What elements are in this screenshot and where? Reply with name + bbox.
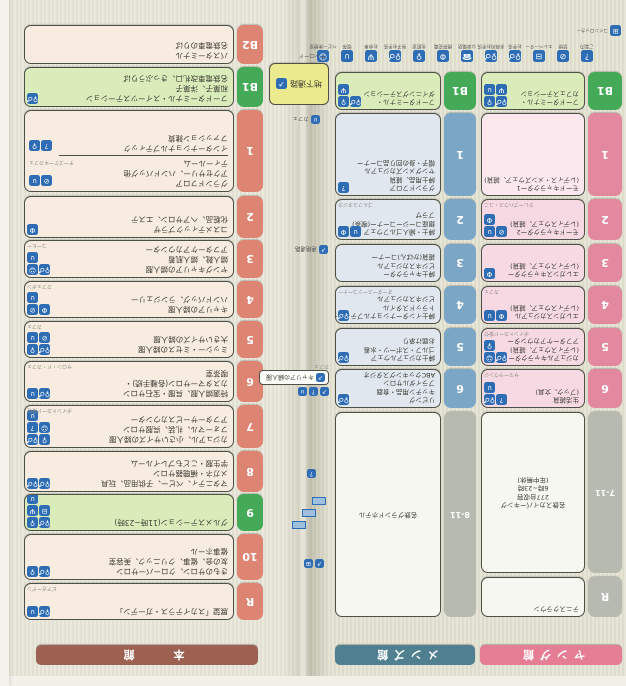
floor-row-mens-3: 3紳士キャラクタービジネスカジュアル雑貨(かばん)コーナー (335, 244, 476, 282)
floor-box: カジュアル、小さいサイズの婦人服フォーマル、礼装、呉服サロンアフターサービスカウ… (24, 405, 234, 448)
info-icon: ? (581, 50, 593, 62)
legend-item: ♀♂多目的お手洗 (480, 43, 502, 62)
service-icon: Φ (496, 310, 507, 321)
floor-line: グルメステーション(11時~23時) (59, 517, 228, 527)
floor-line: 化粧品、ヘアサロン、エステ (59, 215, 228, 225)
female-icon: ♀ (27, 566, 38, 577)
floor-line: フードターミナル・スイーツステーション (59, 93, 228, 103)
floor-line: モードキャラクター2 (516, 228, 579, 236)
floor-box: カジュアルキャラクター(レディスウェア、雑貨)アフターケアカウンター♀♂☺♀ポイ… (481, 328, 585, 366)
floor-row-young-4: 4エレガンスカジュアル(レディスウェア、雑貨)Φ∪カフェ (481, 286, 622, 324)
floor-box: テニスクラウン (481, 577, 585, 617)
floor-box: グランドフロア紳士用品、雑貨ヤングメンズカジュアル帽子・身の回り品コーナー? (335, 113, 441, 196)
floor-line: 紳士用品、雑貨 (370, 175, 435, 183)
floor-line: 雑貨(かばん)コーナー (370, 253, 435, 261)
phone-icon: ☎ (461, 50, 473, 62)
elevator-icon: ⊟ (533, 50, 545, 62)
underpass-label: 地下通路 (290, 79, 322, 90)
floor-row-honkan-5: 5ミッシー・ミセスの婦人服大きいサイズの婦人服♀♂♀⊘∪カフェ (24, 321, 263, 358)
floor-box: リビングキッチン用品・食器ブライダルサロンABCクッキングスタジオ♀♂ (335, 369, 441, 408)
floor-line: テニスクラウン (516, 605, 579, 613)
floor-line: (レディスウェア、雑貨) (516, 261, 579, 269)
icon-note: チーズケーキカフェ (29, 159, 74, 166)
floor-box: エレガンスカジュアル(レディスウェア、雑貨)Φ∪カフェ (481, 286, 585, 324)
floor-line: 紳士カジュアルウェア (370, 354, 435, 362)
floor-line: 紳士キャラクター (370, 270, 435, 278)
cafe-icon: ∪ (29, 175, 40, 186)
floor-line: モードキャラクター1 (516, 184, 579, 192)
restroom-icon: ♀♂ (485, 50, 497, 62)
restroom-icon: ♀♂ (27, 434, 38, 445)
floor-tab: 1 (588, 113, 622, 196)
floor-row-honkan-2: 2コスメティックプラザ化粧品、ヘアサロン、エステΦ (24, 196, 263, 238)
cafe-icon: ∪ (27, 494, 38, 504)
banner-mens: メンズ館 (335, 645, 475, 665)
icon-note: カフェ (484, 288, 499, 295)
floor-line: カスタマーサロン(各種手続)・ (59, 379, 228, 389)
floor-box: モードキャラクター1(レディス・メンズウェア、雑貨) (481, 113, 585, 196)
restroom-icon: ♀♂ (39, 606, 50, 617)
nosmoke-icon: ⊘ (39, 332, 50, 343)
service-icon: Φ (484, 268, 495, 279)
floor-tab: 5 (444, 328, 476, 366)
cafe-icon: ∪ (484, 84, 495, 95)
baby-icon: ☺ (39, 422, 50, 433)
floor-row-honkan-B1: B1フードターミナル・スイーツステーション和菓子、洋菓子名鉄電車改札口、きっぷう… (24, 67, 263, 107)
floor-guide-pamphlet-scan: ヤング館 メンズ館 本 館 Rテニスクラウン7-11名鉄スカイパーキング277台… (0, 0, 626, 686)
info-icon: ? (41, 140, 52, 151)
floor-row-mens-6: 6リビングキッチン用品・食器ブライダルサロンABCクッキングスタジオ♀♂ (335, 369, 476, 408)
cafe-icon: ∪ (298, 387, 307, 396)
cafe-icon: ∪ (341, 50, 353, 62)
legend-label: お食事 (364, 43, 378, 49)
amenity-legend: ?ご案内⊘禁煙⊟エレベーター♀♂お手洗♀♂多目的お手洗☎公衆電話Φ携帯充電♀化粧… (330, 43, 598, 62)
floor-line: メガネ・補聴器サロン (59, 469, 228, 479)
escalator-icon: ↗ (316, 373, 325, 382)
cafe-icon: ∪ (484, 310, 495, 321)
service-icon: Φ (437, 50, 449, 62)
floor-line: キャリアの婦人服 (59, 304, 228, 314)
floor-line: ダイニングステーション (370, 89, 435, 97)
floor-line: (ブック、文具) (516, 387, 579, 395)
floor-row-mens-1: 1グランドフロア紳士用品、雑貨ヤングメンズカジュアル帽子・身の回り品コーナー? (335, 113, 476, 196)
floor-tab: 1 (444, 113, 476, 196)
floor-line: グランドフロア (370, 184, 435, 192)
info-icon: ? (27, 422, 38, 433)
female-icon: ♀ (29, 140, 40, 151)
floor-line: お届け承り (370, 337, 435, 345)
floor-tab: 3 (444, 244, 476, 282)
service-icon: Φ (484, 214, 495, 225)
baby-icon: ☺ (484, 352, 495, 363)
cafe-icon: ∪ (484, 382, 495, 393)
floor-row-honkan-7: 7カジュアル、小さいサイズの婦人服フォーマル、礼装、呉服サロンアフターサービスカ… (24, 405, 263, 448)
floor-box: 紳士カジュアルウェアゴルフ・スポーツ・水着お届け承り♀♂ (335, 328, 441, 366)
floor-tab: 10 (237, 534, 263, 580)
info-icon: ? (309, 387, 318, 396)
legend-item: ♀化粧室 (408, 43, 430, 62)
legend-item: Φ携帯充電 (432, 43, 454, 62)
restroom-icon: ♀♂ (338, 394, 349, 405)
callout-text: キャリアの婦人服 (266, 373, 314, 382)
info-icon: ? (307, 469, 316, 478)
floor-box: 特選婦人服、呉服・宝石サロンカスタマーサロン(各種手続)・喫茶室♀♂∪サロン・ド… (24, 361, 234, 402)
legend-item: ☎公衆電話 (456, 43, 478, 62)
female-icon: ♀ (39, 434, 50, 445)
floor-line: 名鉄スカイパーキング (501, 501, 566, 509)
floor-box: ミッシー・ミセスの婦人服大きいサイズの婦人服♀♂♀⊘∪カフェ (24, 321, 234, 358)
underpass-box: 地下通路 ↗ (269, 63, 329, 105)
escalator-icon: ↗ (320, 387, 329, 396)
floor-line: 名鉄電車のりば (59, 41, 228, 51)
floor-line: マタニティ、ベビー、子供用品、玩具 (59, 478, 228, 488)
icon-note: ゴルフスタジオ (338, 201, 373, 208)
floor-tab: 7-11 (588, 412, 622, 573)
legend-item: ⊟エレベーター (528, 43, 550, 62)
cafe-icon: ∪ (27, 606, 38, 617)
legend-corner-item: ⊞ コインロッカー (577, 25, 622, 36)
cafe-icon: ∪ (350, 226, 361, 237)
female-icon: ♀ (484, 96, 495, 107)
floor-row-young-3: 3エレガンスキャラクター(レディスウェア、雑貨)Φ (481, 244, 622, 282)
floor-row-honkan-9: 9グルメステーション(11時~23時)♀♂♀⊟Ψ∪ (24, 494, 263, 531)
service-icon: Φ (39, 304, 50, 315)
screen-icon: ⊞ (304, 559, 313, 568)
banner-young: ヤング館 (480, 645, 622, 665)
floor-line: 和菓子、洋菓子 (59, 84, 228, 94)
callout-note: カフェ (259, 363, 329, 370)
legend-item: ⊘禁煙 (552, 43, 574, 62)
service-icon: Φ (338, 226, 349, 237)
cafe-icon: ∪ (27, 252, 38, 263)
floor-box: グルメステーション(11時~23時)♀♂♀⊟Ψ∪ (24, 494, 234, 531)
floor-line: 友の会、催事、クリニック、美容室 (59, 557, 228, 567)
floor-row-honkan-1: 1グランドフロアアクセサリー、ハンドバッグ他ティールーム⊘∪チーズケーキカフェイ… (24, 110, 263, 192)
floor-line: エレガンスカジュアル (516, 312, 579, 320)
floor-box: 紳士インターナショナルブティック・トラッドスタイルビジネスカジュアル♀♂オーダー… (335, 286, 441, 324)
floor-line: ABCクッキングスタジオ (370, 370, 435, 378)
floor-line: 特選婦人服、呉服・宝石サロン (59, 388, 228, 398)
floor-line: フードターミナル・ (516, 98, 579, 106)
floor-box: ヤングキャリアの婦人服婦人靴、婦人肌着アフターケアカウンター♀♂☺∪コーヒー (24, 240, 234, 278)
legend-item: ♀♂男子お手洗 (384, 43, 406, 62)
floor-line: 紳士インターナショナルブティック・ (370, 312, 435, 320)
floor-tab: 2 (588, 199, 622, 240)
floor-line: アフターサービスカウンター (59, 415, 228, 425)
info-icon: ? (496, 394, 507, 405)
floor-tab: B1 (237, 67, 263, 107)
floor-line: ビジネスカジュアル (370, 295, 435, 303)
nosmoke-icon: ⊘ (41, 175, 52, 186)
floor-box: 紳士・婦人ゴルフウェア銀座コージーコーナー(喫茶)プラザ∪Φゴルフスタジオ (335, 199, 441, 240)
restroom-icon: ♀♂ (39, 478, 50, 489)
banner-honkan: 本 館 (36, 645, 258, 665)
floor-line: 婦人靴、婦人肌着 (59, 255, 228, 265)
floor-line: 名鉄電車改札口、きっぷうりば (59, 74, 228, 84)
floor-line: ヤングメンズカジュアル (370, 167, 435, 175)
icon-note: クレープハウス・ユニ (484, 201, 534, 208)
floor-line: (年中無休) (517, 476, 548, 484)
restroom-icon: ♀♂ (27, 478, 38, 489)
icon-note: カフェボン (27, 283, 52, 290)
icon-note: ポイントカード受付 (484, 330, 529, 337)
floor-line: 名鉄グランドホテル (359, 510, 418, 518)
floor-row-honkan-3: 3ヤングキャリアの婦人服婦人靴、婦人肌着アフターケアカウンター♀♂☺∪コーヒー (24, 240, 263, 278)
escalator-icon: ↗ (319, 245, 328, 254)
floor-row-honkan-10: 10きものサロン、クローバーサロン友の会、催事、クリニック、美容室催事ホール♀♂… (24, 534, 263, 580)
floor-line: インターナショナルブティック (59, 143, 228, 153)
restroom-icon: ♀♂ (496, 96, 507, 107)
floor-box: フードターミナル・ダイニングステーション♀♂♀Ψ (335, 72, 441, 110)
restroom-icon: ♀♂ (39, 566, 50, 577)
floor-tab: 5 (237, 321, 263, 358)
female-icon: ♀ (27, 517, 38, 528)
floor-line: カジュアル、小さいサイズの婦人服 (59, 434, 228, 444)
floor-line: ゴルフ・スポーツ・水着 (370, 345, 435, 353)
floor-line: (レディスウェア、雑貨) (516, 303, 579, 311)
section-divider (59, 155, 228, 156)
restaurant-icon: Ψ (496, 84, 507, 95)
restroom-icon: ♀♂ (389, 50, 401, 62)
floor-line: 紳士・婦人ゴルフウェア (370, 228, 435, 236)
restroom-icon: ♀♂ (39, 344, 50, 355)
cafe-icon: ∪ (484, 226, 495, 237)
restroom-icon: ♀♂ (509, 50, 521, 62)
floor-tab: 4 (588, 286, 622, 324)
baby-icon: ☺ (27, 264, 38, 275)
cafe-icon: ∪ (27, 332, 38, 343)
legend-label: お手洗 (508, 43, 522, 49)
restroom-icon: ♀♂ (338, 310, 349, 321)
floor-section: グランドフロアアクセサリー、ハンドバッグ他ティールーム⊘∪チーズケーキカフェ (59, 158, 228, 188)
floor-line: リビング (370, 396, 435, 404)
floor-row-honkan-8: 8マタニティ、ベビー、子供用品、玩具メガネ・補聴器サロン学生服・こどもプレイルー… (24, 451, 263, 492)
escalator-icon: ↗ (315, 559, 324, 568)
floor-row-young-1: 1モードキャラクター1(レディス・メンズウェア、雑貨) (481, 113, 622, 196)
floor-line: 展望「スカイテラス・ガーデン」 (59, 606, 228, 616)
floor-row-young-B1: B1フードターミナル・カフェステーション♀♂♀Ψ∪ (481, 72, 622, 110)
icon-note: オーダースーツコーナー (338, 288, 393, 295)
bridge-label: 連絡通路 (295, 246, 317, 254)
escalator-steps-marker (286, 491, 326, 531)
restaurant-icon: Ψ (365, 50, 377, 62)
floor-line: 6時~23時 (518, 484, 549, 492)
legend-item: ∪喫茶 (336, 43, 358, 62)
floor-box: エレガンスキャラクター(レディスウェア、雑貨)Φ (481, 244, 585, 282)
floor-row-honkan-6: 6特選婦人服、呉服・宝石サロンカスタマーサロン(各種手続)・喫茶室♀♂∪サロン・… (24, 361, 263, 402)
floor-line: きものサロン、クローバーサロン (59, 566, 228, 576)
floor-line: ヤングキャリアの婦人服 (59, 264, 228, 274)
floor-tab: 2 (237, 196, 263, 238)
floor-line: アフターケアカウンター (516, 337, 579, 345)
floor-line: グランドフロア (59, 178, 228, 188)
floor-tab: 2 (444, 199, 476, 240)
floor-line: 喫茶室 (59, 369, 228, 379)
restroom-icon: ♀♂ (39, 517, 50, 528)
floor-line: エレガンスキャラクター (516, 270, 579, 278)
fold-cafe-marker: ∪ カフェ (292, 115, 320, 124)
legend-label: 携帯充電 (434, 43, 452, 49)
female-icon: ♀ (27, 344, 38, 355)
floor-line: 催事ホール (59, 547, 228, 557)
floor-line: (レディスウェア、雑貨) (516, 345, 579, 353)
floor-box: フードターミナル・カフェステーション♀♂♀Ψ∪ (481, 72, 585, 110)
floor-box: 名鉄スカイパーキング277台収容6時~23時(年中無休) (481, 412, 585, 573)
escalator-icon: ↗ (276, 79, 287, 90)
fold-cafe-note: カフェ (292, 116, 309, 124)
restroom-icon: ♀♂ (27, 93, 38, 104)
nosmoke-icon: ⊘ (496, 226, 507, 237)
fold-info-marker: ? (307, 469, 316, 478)
floor-row-mens-4: 4紳士インターナショナルブティック・トラッドスタイルビジネスカジュアル♀♂オーダ… (335, 286, 476, 324)
female-icon: ♀ (338, 96, 349, 107)
floor-row-honkan-R: R展望「スカイテラス・ガーデン」♀♂∪ビアガーデン (24, 583, 263, 620)
floor-line: フォーマル、礼装、呉服サロン (59, 425, 228, 435)
elevator-icon: ⊟ (39, 505, 50, 516)
floor-box: 展望「スカイテラス・ガーデン」♀♂∪ビアガーデン (24, 583, 234, 620)
floor-line: 学生服・こどもプレイルーム (59, 459, 228, 469)
legend-label: エレベーター (526, 43, 553, 49)
legend-label: 男子お手洗 (384, 43, 407, 49)
floor-section: インターナショナルブティックファッション雑貨?♀ (59, 123, 228, 153)
floor-tab: 6 (444, 369, 476, 408)
icon-note: サロン・ド・カフェ (27, 363, 72, 370)
pamphlet-rotated-180: ヤング館 メンズ館 本 館 Rテニスクラウン7-11名鉄スカイパーキング277台… (0, 0, 626, 686)
nosmoke-icon: ⊘ (557, 50, 569, 62)
floor-line: コスメティックプラザ (59, 224, 228, 234)
floor-line: 277台収容 (517, 493, 549, 501)
legend-label: 禁煙 (559, 43, 568, 49)
floor-row-young-2: 2モードキャラクター2(レディスウェア、雑貨)⊘∪Φクレープハウス・ユニ (481, 199, 622, 240)
floor-line: ミッシー・ミセスの婦人服 (59, 344, 228, 354)
floor-line: 大きいサイズの婦人服 (59, 335, 228, 345)
floor-tab: 3 (588, 244, 622, 282)
floor-tab: 4 (444, 286, 476, 324)
underpass-note: サンロード (298, 52, 326, 60)
icon-note: サマーラウンジ (484, 371, 519, 378)
floor-line: 銀座コージーコーナー(喫茶) (370, 219, 435, 227)
floor-line: カジュアルキャラクター (516, 354, 579, 362)
floor-row-mens-2: 2紳士・婦人ゴルフウェア銀座コージーコーナー(喫茶)プラザ∪Φゴルフスタジオ (335, 199, 476, 240)
escalator-screen-marker: ↗ ⊞ (304, 559, 324, 568)
legend-label: 喫茶 (343, 43, 352, 49)
female-icon: ♀ (484, 340, 495, 351)
scan-margin-right (0, 0, 9, 686)
restroom-icon: ♀♂ (350, 96, 361, 107)
cafe-icon: ∪ (27, 388, 38, 399)
legend-item: Ψお食事 (360, 43, 382, 62)
restroom-icon: ♀♂ (39, 264, 50, 275)
legend-label: 公衆電話 (458, 43, 476, 49)
floor-tab: B1 (588, 72, 622, 110)
floor-tab: 7 (237, 405, 263, 448)
floor-line: ブライダルサロン (370, 379, 435, 387)
floor-line: バスターミナル (59, 50, 228, 60)
floor-tab: 4 (237, 281, 263, 318)
icon-note: ポイントカード受付 (27, 407, 72, 414)
service-icon: Φ (27, 224, 38, 235)
floor-line: キッチン用品・食器 (370, 387, 435, 395)
floor-line: 生活雑貨 (516, 396, 579, 404)
floor-tab: 9 (237, 494, 263, 531)
floor-line: ティールーム (59, 159, 228, 169)
floor-tab: B2 (237, 25, 263, 64)
restaurant-icon: Ψ (27, 505, 38, 516)
floor-line: アクセサリー、ハンドバッグ他 (59, 169, 228, 179)
floor-box: フードターミナル・スイーツステーション和菓子、洋菓子名鉄電車改札口、きっぷうりば… (24, 67, 234, 107)
floor-tab: 3 (237, 240, 263, 278)
floor-line: アフターケアカウンター (59, 245, 228, 255)
icon-note: カフェ (27, 323, 42, 330)
floor-row-young-6: 6生活雑貨(ブック、文具)?♀♂∪サマーラウンジ (481, 369, 622, 408)
floor-box: コスメティックプラザ化粧品、ヘアサロン、エステΦ (24, 196, 234, 238)
floor-row-mens-8-11: 8-11名鉄グランドホテル (335, 412, 476, 617)
cafe-icon: ∪ (311, 115, 320, 124)
floor-row-young-7-11: 7-11名鉄スカイパーキング277台収容6時~23時(年中無休) (481, 412, 622, 573)
floor-line: ファッション雑貨 (59, 134, 228, 144)
floor-row-mens-B1: B1フードターミナル・ダイニングステーション♀♂♀Ψ (335, 72, 476, 110)
restroom-icon: ♀♂ (39, 388, 50, 399)
legend-item: ?ご案内 (576, 43, 598, 62)
bridge-callout: ↗?∪ ↗ キャリアの婦人服 カフェ (259, 363, 329, 396)
floor-row-young-R: Rテニスクラウン (481, 577, 622, 617)
floor-row-mens-5: 5紳士カジュアルウェアゴルフ・スポーツ・水着お届け承り♀♂ (335, 328, 476, 366)
restaurant-icon: Ψ (338, 84, 349, 95)
nosmoke-icon: ⊘ (27, 304, 38, 315)
cafe-icon: ∪ (27, 292, 38, 303)
floor-box: バスターミナル名鉄電車のりば (24, 25, 234, 64)
female-icon: ♀ (413, 50, 425, 62)
legend-corner-label: コインロッカー (577, 28, 609, 34)
floor-line: ハンドバッグ、ランジェリー (59, 295, 228, 305)
icon-note: ビアガーデン (27, 585, 57, 592)
legend-label: ベビー休憩室 (310, 43, 337, 49)
floor-tab: 6 (588, 369, 622, 408)
floor-tab: 1 (237, 110, 263, 192)
legend-label: 多目的お手洗 (478, 43, 505, 49)
bridge-marker: ↗ 連絡通路 (295, 245, 328, 254)
floor-row-honkan-4: 4キャリアの婦人服ハンドバッグ、ランジェリーΦ⊘∪カフェボン (24, 281, 263, 318)
floor-box: きものサロン、クローバーサロン友の会、催事、クリニック、美容室催事ホール♀♂♀ (24, 534, 234, 580)
restroom-icon: ♀♂ (496, 352, 507, 363)
floor-row-honkan-B2: B2バスターミナル名鉄電車のりば (24, 25, 263, 64)
floor-line: (レディスウェア、雑貨) (516, 219, 579, 227)
floor-tab: R (588, 577, 622, 617)
floor-box: 生活雑貨(ブック、文具)?♀♂∪サマーラウンジ (481, 369, 585, 408)
icon-note: コーヒー (27, 242, 47, 249)
info-icon: ? (338, 182, 349, 193)
floor-box: 紳士キャラクタービジネスカジュアル雑貨(かばん)コーナー (335, 244, 441, 282)
legend-label: 化粧室 (412, 43, 426, 49)
floor-line: カフェステーション (516, 89, 579, 97)
floor-box: キャリアの婦人服ハンドバッグ、ランジェリーΦ⊘∪カフェボン (24, 281, 234, 318)
coin-locker-icon: ⊞ (610, 25, 621, 36)
floor-box: グランドフロアアクセサリー、ハンドバッグ他ティールーム⊘∪チーズケーキカフェイン… (24, 110, 234, 192)
floor-tab: R (237, 583, 263, 620)
floor-line: ビジネスカジュアル (370, 261, 435, 269)
floor-line: トラッドスタイル (370, 303, 435, 311)
legend-label: ご案内 (580, 43, 594, 49)
floor-line: (レディス・メンズウェア、雑貨) (516, 175, 579, 183)
floor-tab: 5 (588, 328, 622, 366)
restroom-icon: ♀♂ (484, 394, 495, 405)
floor-row-young-5: 5カジュアルキャラクター(レディスウェア、雑貨)アフターケアカウンター♀♂☺♀ポ… (481, 328, 622, 366)
floor-line: プラザ (370, 211, 435, 219)
floor-box: 名鉄グランドホテル (335, 412, 441, 617)
floor-box: マタニティ、ベビー、子供用品、玩具メガネ・補聴器サロン学生服・こどもプレイルーム… (24, 451, 234, 492)
floor-tab: B1 (444, 72, 476, 110)
restroom-icon: ♀♂ (338, 352, 349, 363)
